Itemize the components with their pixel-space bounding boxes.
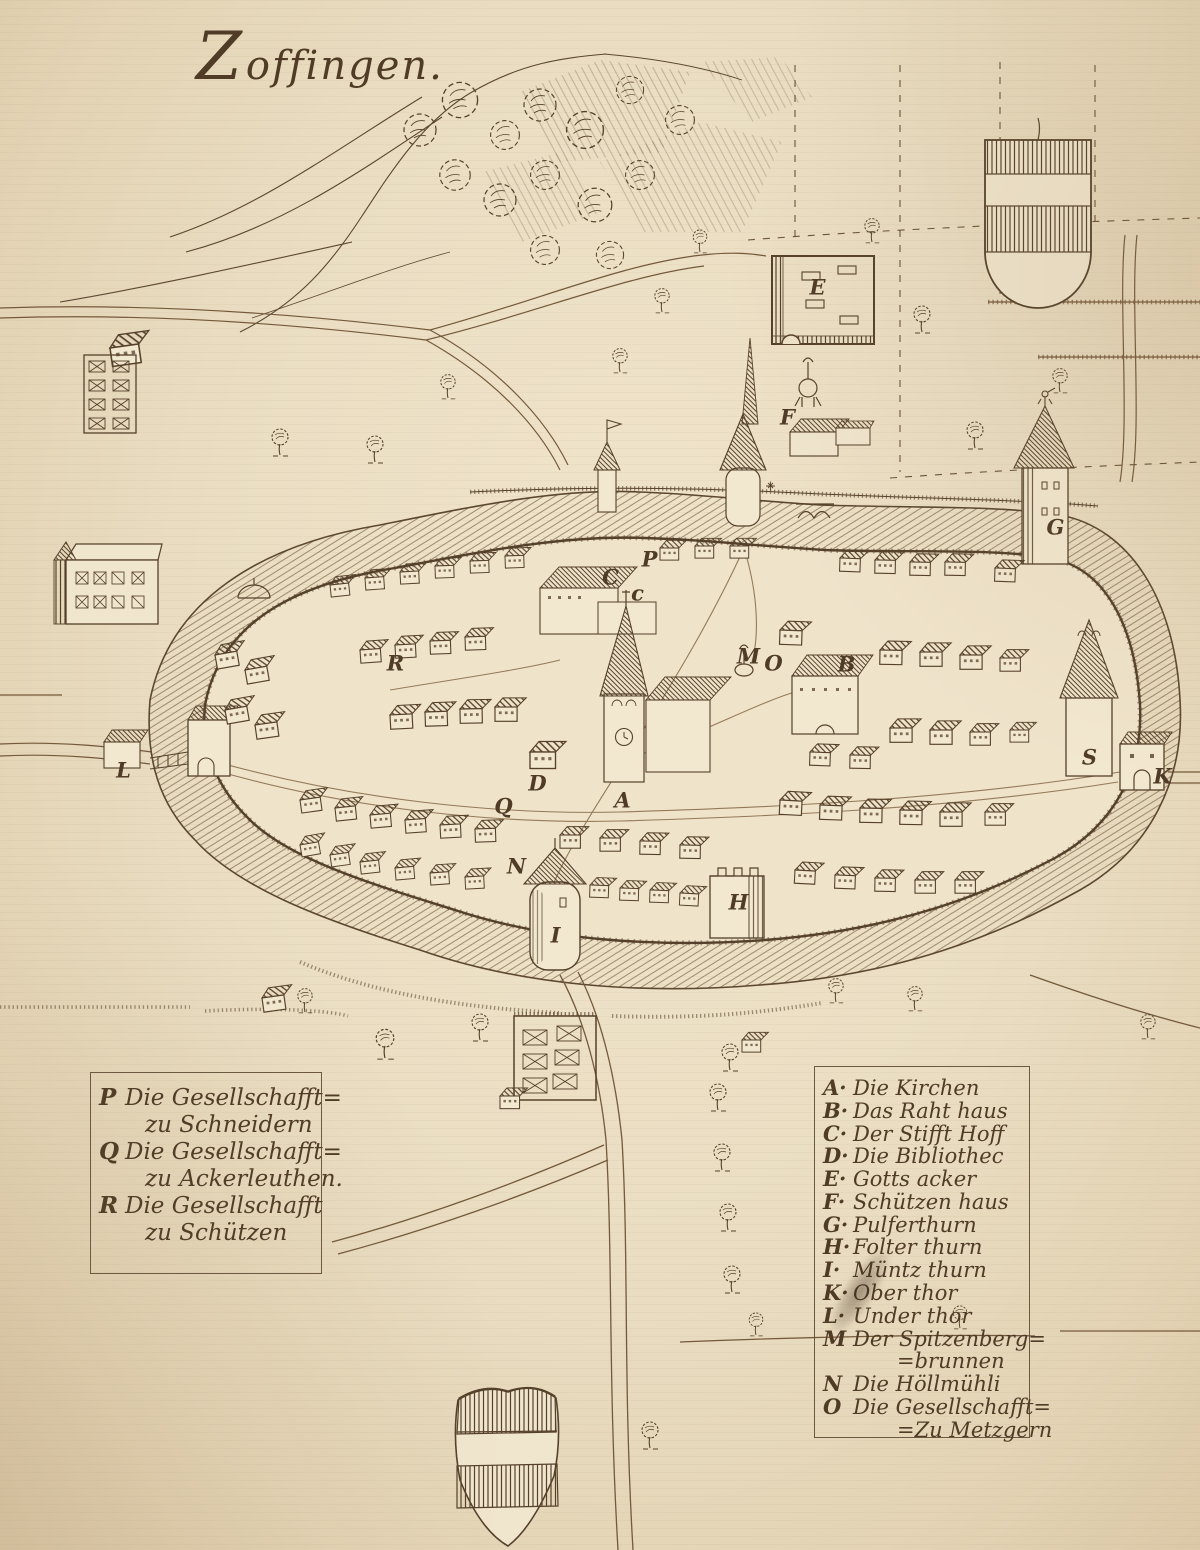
coat-of-arms-top [985,118,1091,308]
upper-wall-round-tower [720,338,775,526]
cemetery-enclosure [772,256,874,344]
farm-top-left [84,331,153,433]
fountain-upper [795,358,821,407]
shooting-house [790,419,874,456]
garden-enclosure [500,1014,596,1109]
building-left-outside [54,542,162,624]
powder-tower [1014,388,1074,564]
map-drawing [0,0,1200,1550]
forest [404,57,812,269]
map-page: Zoffingen. EFGPCcRMOBDAQLSKNIH PDie Gese… [0,0,1200,1550]
prison-tower [710,868,764,938]
coat-of-arms-bottom [455,1387,558,1546]
fields [748,62,1200,478]
